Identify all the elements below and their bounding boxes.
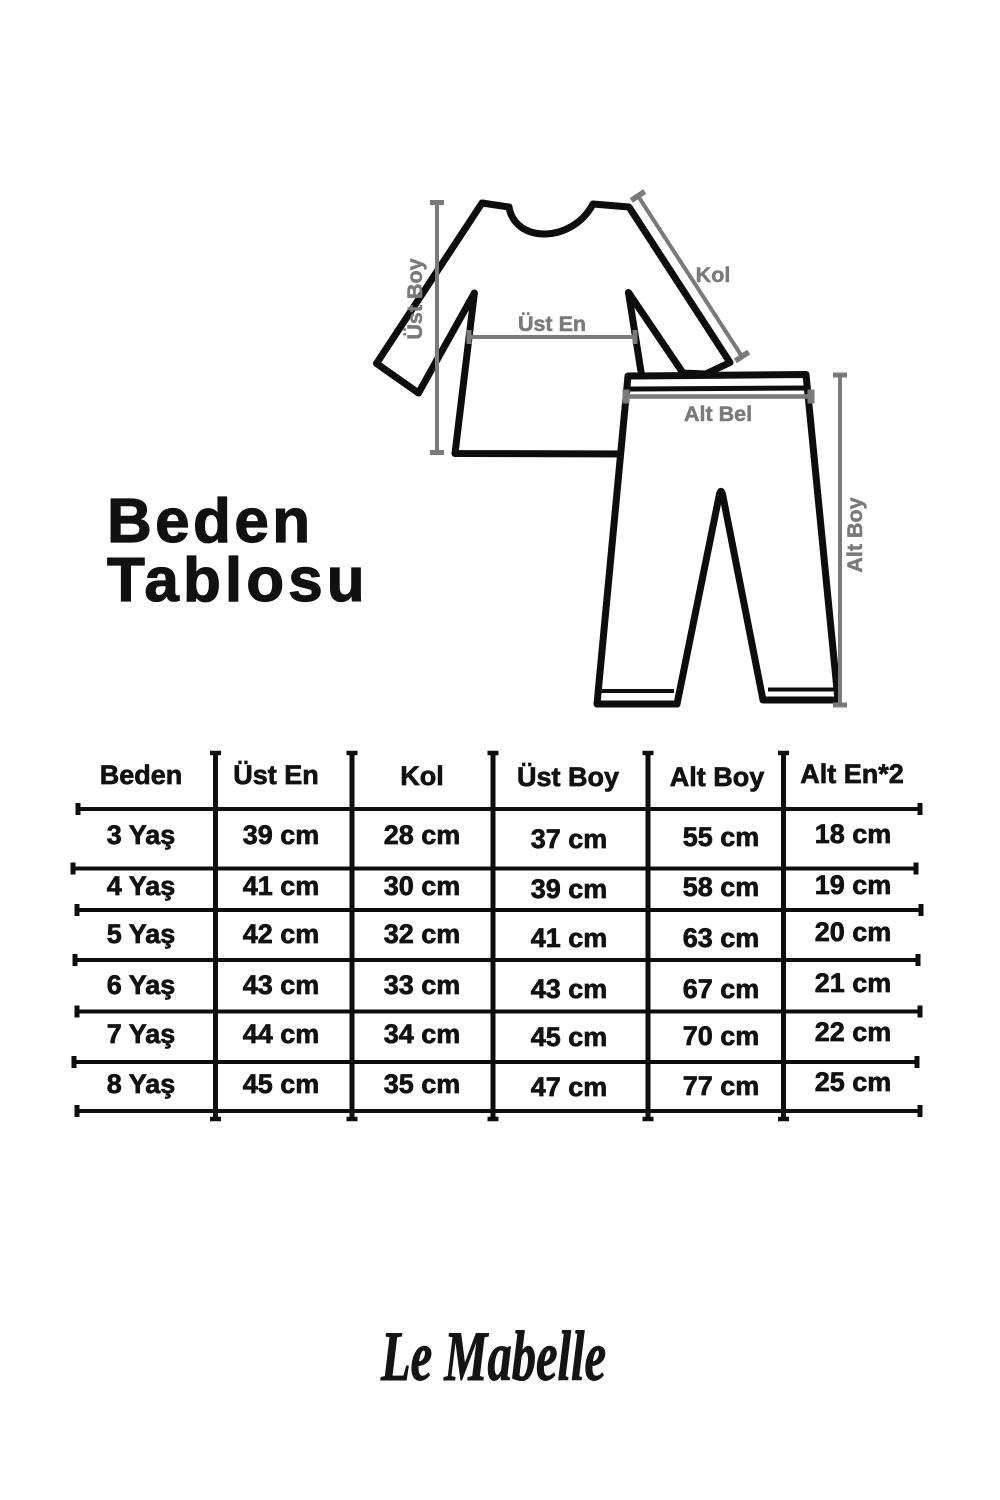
svg-text:22 cm: 22 cm	[815, 1017, 892, 1047]
svg-text:43 cm: 43 cm	[243, 970, 320, 1000]
svg-text:77 cm: 77 cm	[683, 1071, 760, 1101]
svg-text:34 cm: 34 cm	[384, 1019, 461, 1049]
svg-text:Kol: Kol	[696, 263, 731, 287]
svg-text:37 cm: 37 cm	[531, 824, 608, 854]
svg-text:35 cm: 35 cm	[384, 1069, 461, 1099]
svg-text:Üst En: Üst En	[233, 760, 319, 790]
svg-text:58 cm: 58 cm	[683, 872, 760, 902]
svg-text:47 cm: 47 cm	[531, 1072, 608, 1102]
svg-text:Üst Boy: Üst Boy	[517, 762, 619, 792]
svg-text:41 cm: 41 cm	[531, 923, 608, 953]
svg-text:28 cm: 28 cm	[384, 820, 461, 850]
svg-text:55 cm: 55 cm	[683, 822, 760, 852]
svg-text:43 cm: 43 cm	[531, 974, 608, 1004]
svg-text:18 cm: 18 cm	[815, 819, 892, 849]
svg-text:7 Yaş: 7 Yaş	[107, 1019, 176, 1049]
svg-text:30 cm: 30 cm	[384, 871, 461, 901]
svg-text:20 cm: 20 cm	[815, 917, 892, 947]
svg-text:3 Yaş: 3 Yaş	[107, 820, 176, 850]
svg-text:33 cm: 33 cm	[384, 970, 461, 1000]
svg-text:32 cm: 32 cm	[384, 919, 461, 949]
svg-text:Alt En*2: Alt En*2	[800, 759, 904, 789]
svg-text:Alt Bel: Alt Bel	[684, 402, 752, 426]
svg-text:Beden: Beden	[100, 760, 183, 790]
svg-text:45 cm: 45 cm	[243, 1069, 320, 1099]
svg-text:5 Yaş: 5 Yaş	[107, 919, 176, 949]
svg-text:Üst En: Üst En	[518, 311, 586, 336]
svg-text:39 cm: 39 cm	[243, 820, 320, 850]
svg-text:41 cm: 41 cm	[243, 871, 320, 901]
svg-text:6 Yaş: 6 Yaş	[107, 970, 176, 1000]
svg-text:45 cm: 45 cm	[531, 1022, 608, 1052]
svg-text:63 cm: 63 cm	[683, 923, 760, 953]
svg-text:Üst Boy: Üst Boy	[402, 258, 427, 339]
svg-text:25 cm: 25 cm	[815, 1067, 892, 1097]
svg-text:39 cm: 39 cm	[531, 874, 608, 904]
svg-text:Le Mabelle: Le Mabelle	[380, 1318, 606, 1396]
svg-text:Tablosu: Tablosu	[107, 546, 369, 615]
svg-text:21 cm: 21 cm	[815, 968, 892, 998]
svg-text:Alt Boy: Alt Boy	[843, 497, 867, 572]
svg-text:Alt Boy: Alt Boy	[670, 762, 765, 792]
svg-text:70 cm: 70 cm	[683, 1021, 760, 1051]
svg-text:4 Yaş: 4 Yaş	[107, 871, 176, 901]
svg-text:44 cm: 44 cm	[243, 1019, 320, 1049]
svg-text:67 cm: 67 cm	[683, 974, 760, 1004]
svg-text:19 cm: 19 cm	[815, 870, 892, 900]
svg-text:Kol: Kol	[400, 761, 444, 791]
svg-text:42 cm: 42 cm	[243, 919, 320, 949]
svg-text:8 Yaş: 8 Yaş	[107, 1069, 176, 1099]
